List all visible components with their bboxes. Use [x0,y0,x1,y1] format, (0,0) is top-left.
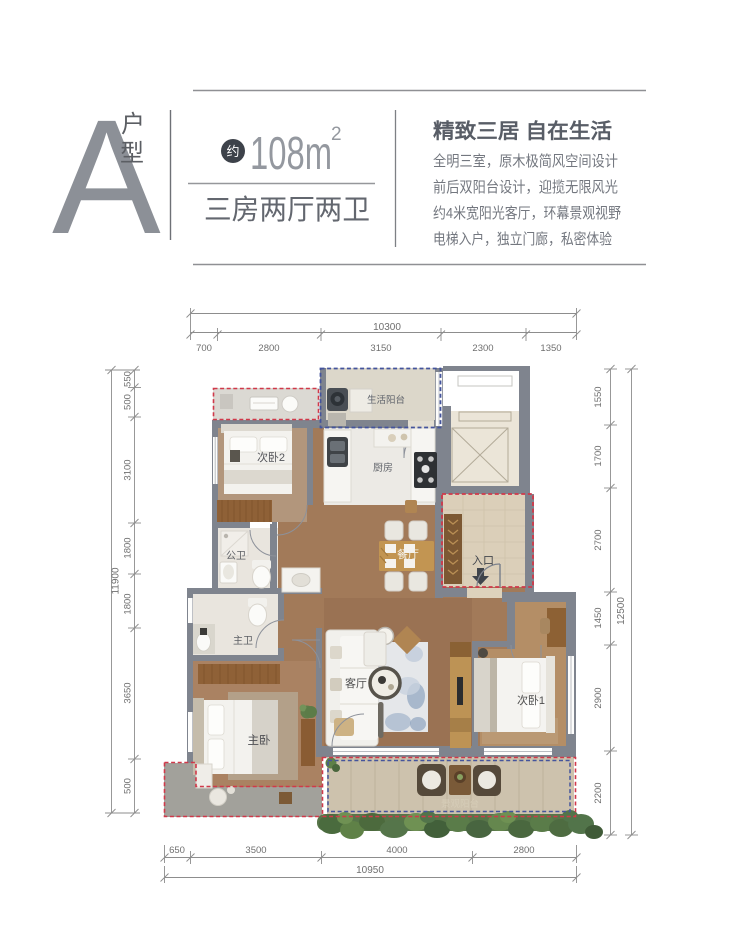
svg-text:108m: 108m [250,127,332,179]
svg-text:次卧1: 次卧1 [517,693,545,707]
svg-text:餐厅: 餐厅 [397,547,419,561]
svg-text:精致三居 自在生活: 精致三居 自在生活 [433,119,612,143]
svg-text:2200: 2200 [593,782,604,803]
svg-text:景观阳台: 景观阳台 [441,798,479,810]
svg-text:11900: 11900 [111,567,122,595]
svg-text:2700: 2700 [593,529,604,550]
svg-text:主卧: 主卧 [248,734,271,747]
svg-text:2300: 2300 [472,343,493,354]
svg-text:公卫: 公卫 [226,551,246,562]
svg-text:电梯入户，独立门廊，私密体验: 电梯入户，独立门廊，私密体验 [433,231,612,248]
svg-text:3500: 3500 [245,845,266,856]
svg-text:1800: 1800 [123,593,134,614]
svg-text:2800: 2800 [513,845,534,856]
svg-text:户: 户 [121,111,145,138]
svg-text:1550: 1550 [593,386,604,407]
svg-text:1450: 1450 [593,607,604,628]
svg-text:10950: 10950 [356,865,384,876]
svg-text:500: 500 [123,778,134,794]
svg-text:1800: 1800 [123,537,134,558]
svg-text:4000: 4000 [386,845,407,856]
svg-text:客厅: 客厅 [345,676,367,690]
svg-text:10300: 10300 [373,322,401,333]
svg-text:型: 型 [120,140,144,167]
svg-text:次卧2: 次卧2 [257,450,285,464]
svg-text:厨房: 厨房 [373,461,393,474]
svg-text:500: 500 [123,394,134,410]
svg-text:约4米宽阳光客厅，环幕景观视野: 约4米宽阳光客厅，环幕景观视野 [433,205,621,222]
svg-text:前后双阳台设计，迎揽无限风光: 前后双阳台设计，迎揽无限风光 [433,179,618,196]
svg-text:入口: 入口 [472,555,494,567]
svg-text:全明三室，原木极简风空间设计: 全明三室，原木极简风空间设计 [433,152,618,170]
svg-text:1350: 1350 [540,343,561,354]
svg-text:650: 650 [169,845,185,856]
svg-text:三房两厅两卫: 三房两厅两卫 [204,194,370,225]
svg-text:3100: 3100 [123,459,134,480]
svg-text:1700: 1700 [593,445,604,466]
svg-text:12500: 12500 [616,597,627,625]
svg-text:2800: 2800 [258,343,279,354]
svg-text:生活阳台: 生活阳台 [367,394,405,406]
svg-text:2: 2 [331,124,342,145]
svg-text:700: 700 [196,343,212,354]
svg-text:主卫: 主卫 [233,635,253,647]
svg-text:3150: 3150 [370,343,391,354]
svg-text:550: 550 [123,371,134,387]
svg-text:2900: 2900 [593,687,604,708]
svg-text:3650: 3650 [123,682,134,703]
svg-text:约: 约 [226,144,239,159]
